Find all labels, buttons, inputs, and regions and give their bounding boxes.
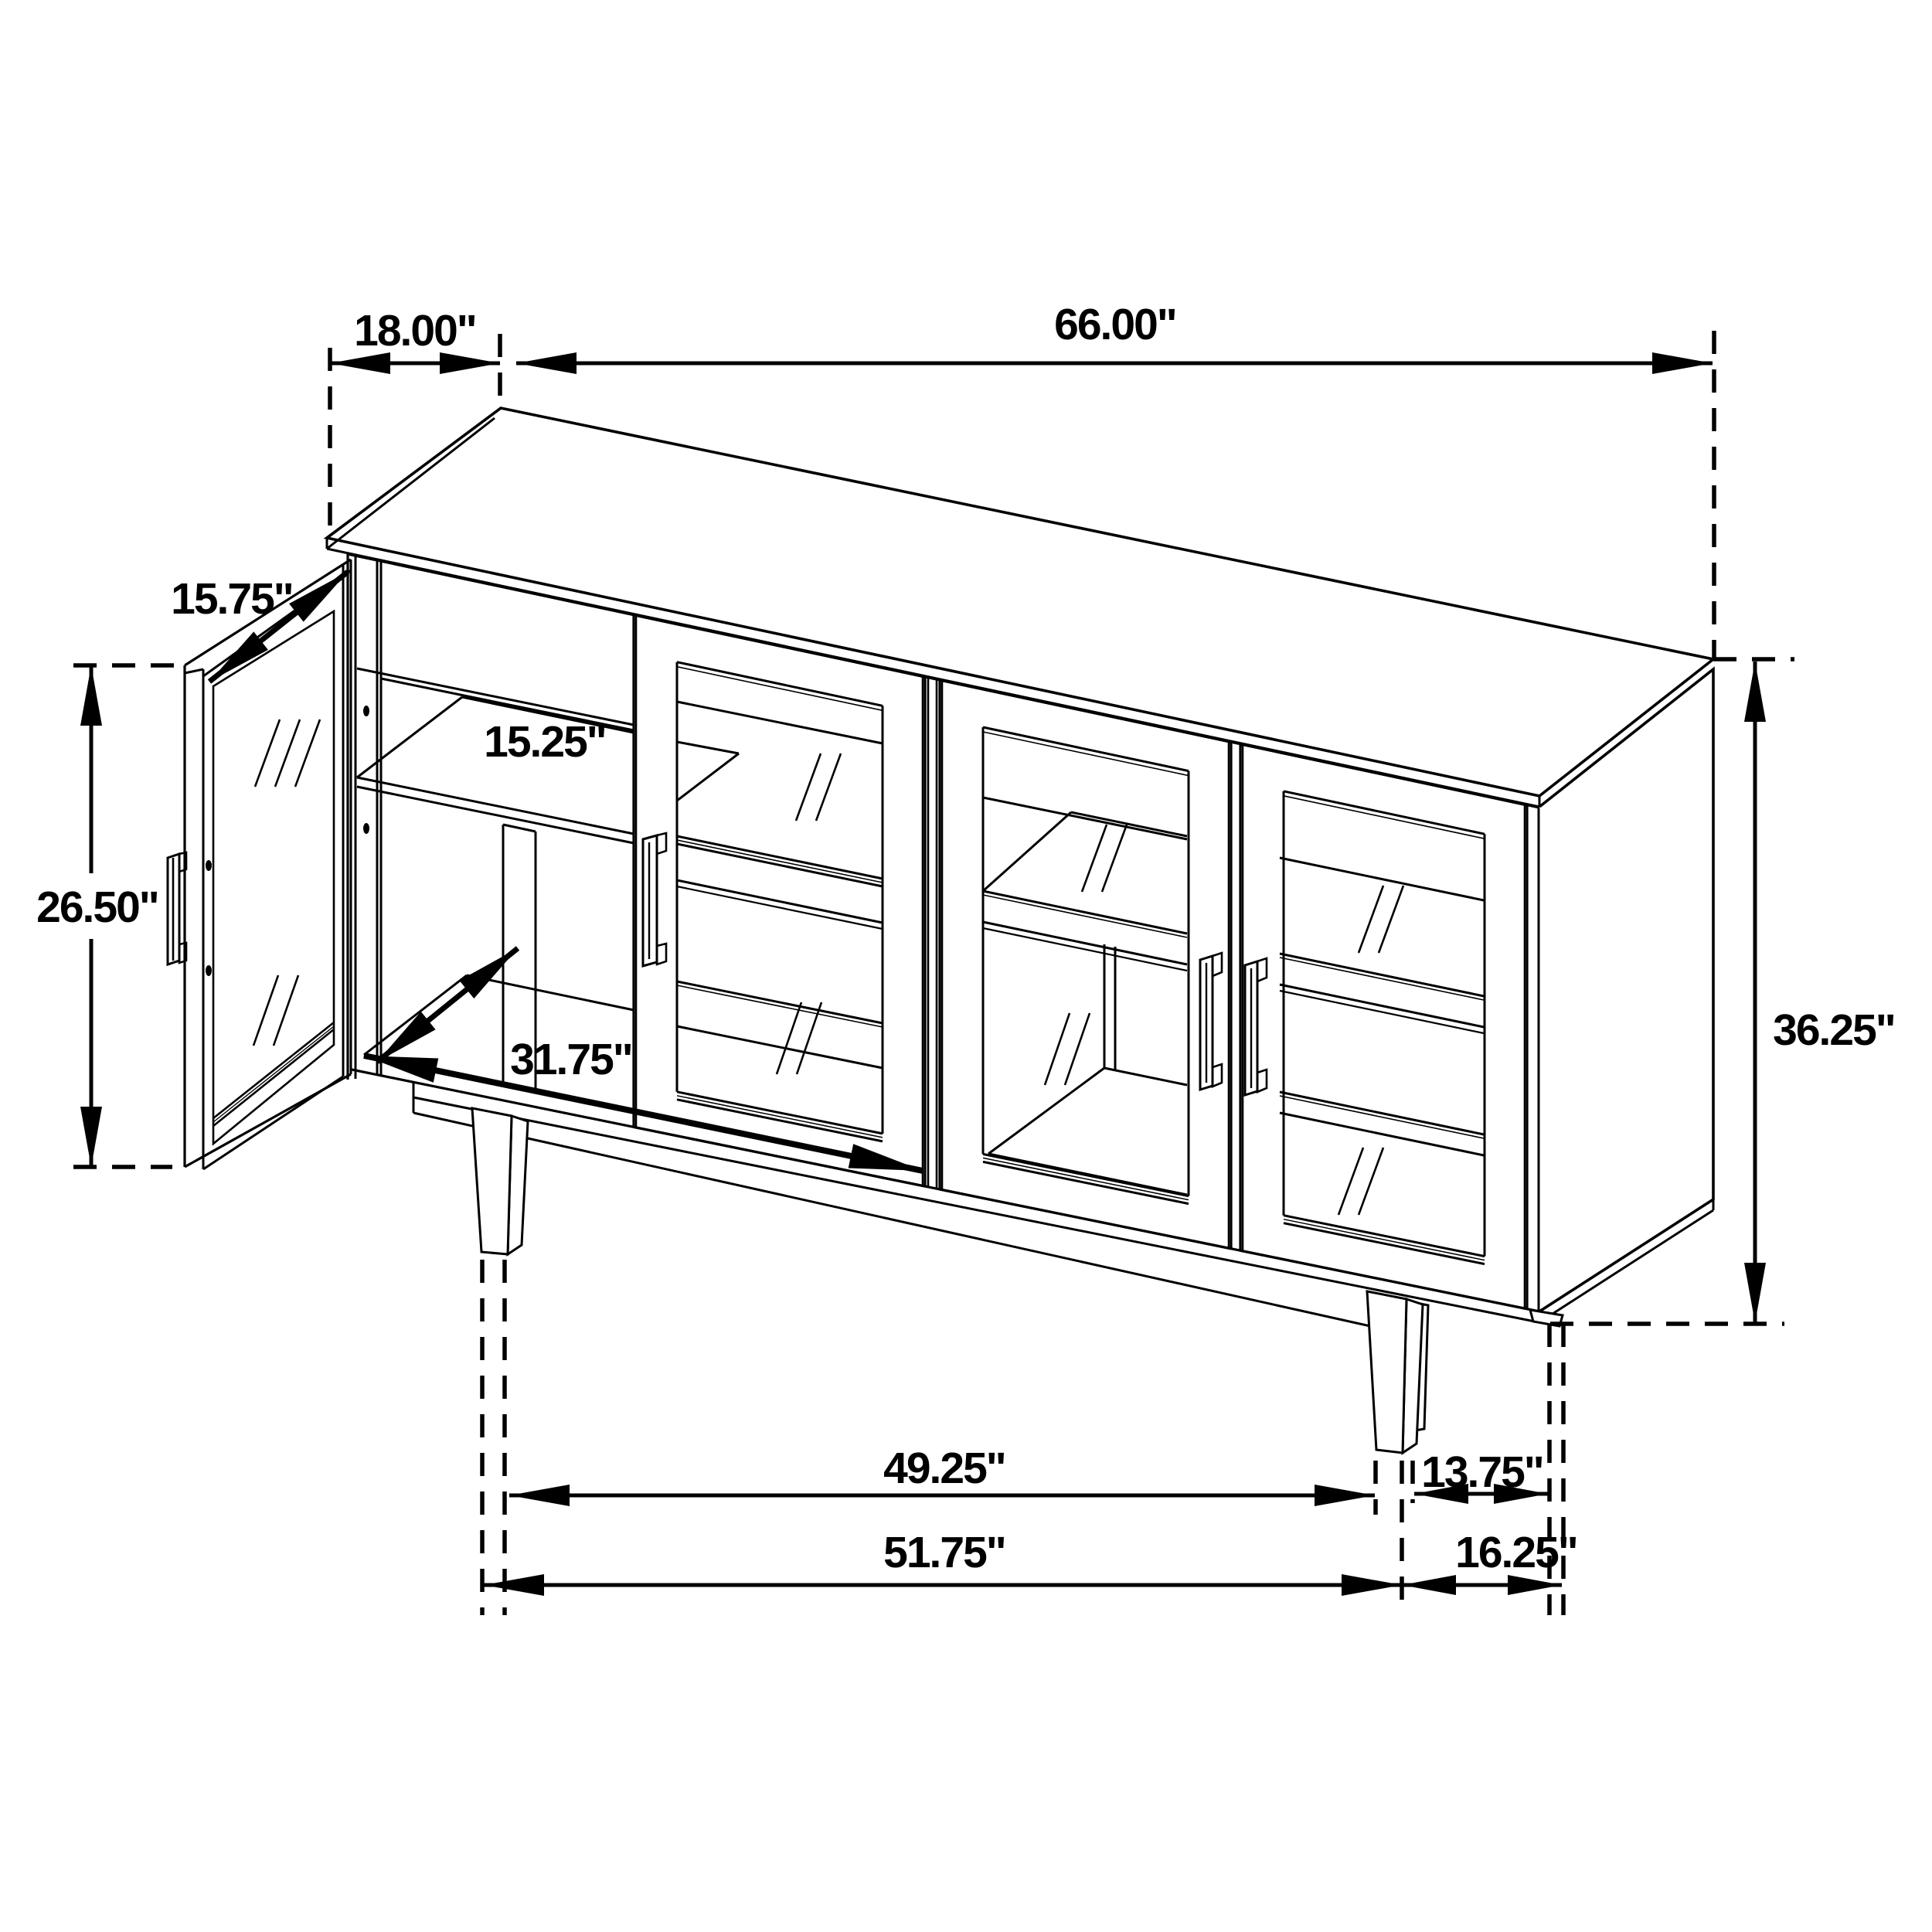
- svg-text:26.50": 26.50": [36, 883, 158, 932]
- svg-text:51.75": 51.75": [883, 1528, 1005, 1577]
- svg-text:18.00": 18.00": [354, 306, 476, 355]
- svg-text:49.25": 49.25": [883, 1444, 1005, 1493]
- svg-text:15.25": 15.25": [484, 717, 606, 767]
- svg-text:31.75": 31.75": [510, 1035, 632, 1084]
- svg-text:36.25": 36.25": [1773, 1005, 1895, 1055]
- svg-text:66.00": 66.00": [1054, 300, 1176, 349]
- svg-text:15.75": 15.75": [171, 574, 293, 624]
- svg-text:16.25": 16.25": [1455, 1528, 1577, 1577]
